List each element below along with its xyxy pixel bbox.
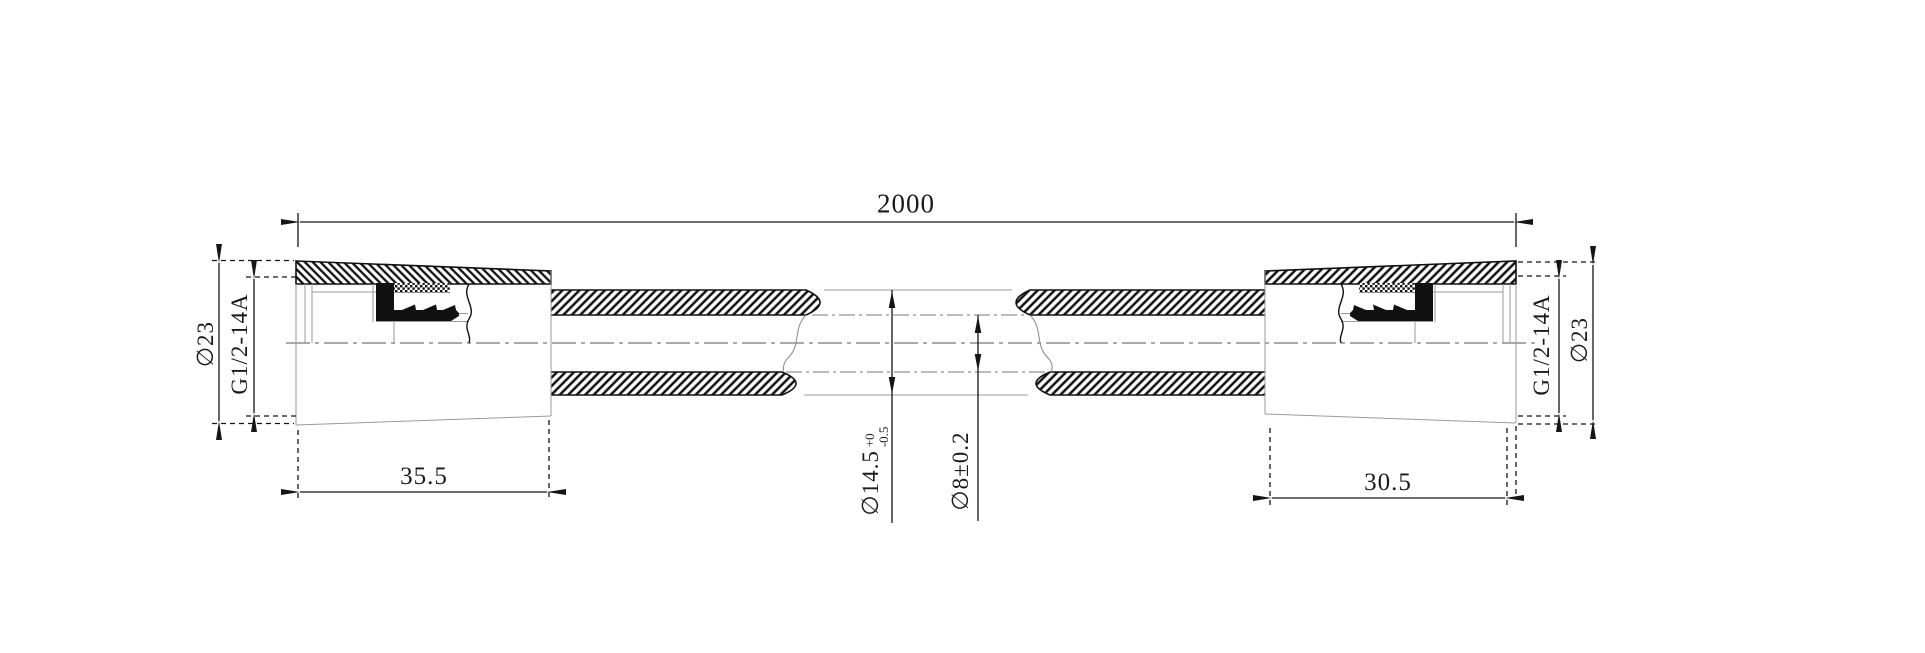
dim-left-thread: [246, 277, 299, 416]
hose-lower-wall-left: [551, 372, 796, 395]
label-hose-bore-diameter: ∅8±0.2: [948, 432, 974, 511]
hose-od-value: ∅14.5: [858, 450, 883, 515]
dim-left-outside-diameter: [212, 261, 294, 424]
hose-lower-wall-right: [1036, 372, 1265, 395]
drawing-geometry: [0, 0, 1925, 653]
right-fitting-crimp-shell: [1265, 261, 1516, 284]
hose-assembly-technical-drawing: 2000 35.5 30.5 ∅23 G1/2-14A G1/2-14A ∅23…: [0, 0, 1925, 653]
right-fitting-crimp-detail: [1350, 283, 1433, 321]
right-fitting-body: [1265, 271, 1516, 423]
label-right-thread: G1/2-14A: [1529, 294, 1555, 395]
label-hose-outer-diameter: ∅14.5+0-0.5: [858, 427, 890, 516]
left-fitting-crimp-shell: [296, 261, 551, 284]
label-left-thread: G1/2-14A: [227, 293, 253, 394]
label-overall-length: 2000: [877, 189, 935, 220]
label-right-outside-diameter: ∅23: [1567, 317, 1593, 363]
label-right-fitting-length: 30.5: [1364, 469, 1412, 497]
hose-upper-wall-right: [1016, 290, 1265, 315]
label-left-outside-diameter: ∅23: [193, 321, 219, 367]
hose-od-tol-upper: +0: [863, 427, 877, 448]
left-fitting-body: [296, 271, 551, 425]
hose-od-tol-lower: -0.5: [877, 427, 891, 448]
left-fitting-crimp-detail: [376, 283, 459, 321]
dim-hose-bore-diameter: [975, 315, 982, 521]
label-left-fitting-length: 35.5: [400, 463, 448, 491]
right-fitting: [1265, 261, 1516, 423]
hose-upper-wall-left: [551, 290, 820, 315]
